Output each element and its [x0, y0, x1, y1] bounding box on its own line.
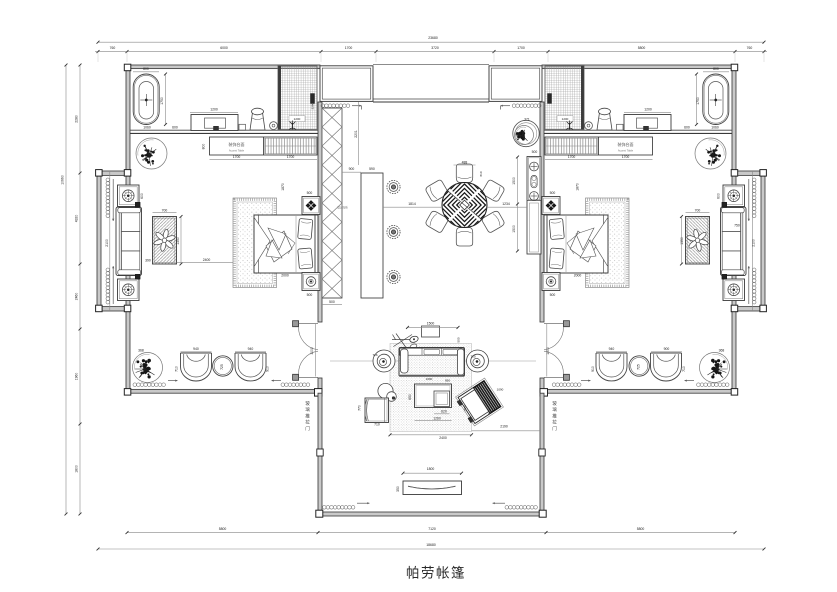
svg-text:2280: 2280: [74, 115, 78, 123]
svg-text:23680: 23680: [428, 36, 438, 40]
svg-text:800: 800: [713, 67, 719, 71]
svg-text:1350: 1350: [176, 237, 180, 245]
svg-text:700: 700: [695, 208, 701, 212]
svg-text:拉: 拉: [305, 419, 310, 426]
svg-text:6000: 6000: [220, 46, 228, 50]
svg-text:371: 371: [524, 117, 530, 121]
svg-text:璃: 璃: [552, 406, 557, 413]
svg-text:2100: 2100: [105, 239, 109, 247]
svg-text:1750: 1750: [160, 97, 164, 105]
svg-text:1700: 1700: [517, 46, 525, 50]
svg-text:装饰台面: 装饰台面: [618, 141, 634, 147]
svg-text:1814: 1814: [408, 202, 416, 206]
svg-text:620: 620: [441, 410, 447, 414]
svg-text:推: 推: [305, 412, 310, 419]
svg-text:350: 350: [396, 486, 400, 492]
svg-text:装饰台面: 装饰台面: [229, 141, 245, 147]
svg-text:5800: 5800: [637, 527, 645, 531]
svg-text:770: 770: [357, 405, 361, 411]
svg-text:760: 760: [110, 46, 116, 50]
svg-text:1700: 1700: [233, 155, 241, 159]
svg-text:810: 810: [479, 171, 483, 176]
svg-text:700: 700: [162, 208, 168, 212]
svg-text:368: 368: [719, 349, 725, 353]
svg-text:2100: 2100: [751, 239, 755, 247]
svg-text:500: 500: [550, 293, 556, 297]
svg-text:1700: 1700: [568, 155, 576, 159]
svg-text:门: 门: [305, 425, 310, 432]
svg-text:1090: 1090: [426, 377, 433, 381]
svg-text:910: 910: [591, 366, 595, 372]
svg-text:500: 500: [532, 150, 538, 154]
svg-text:1500: 1500: [512, 177, 516, 185]
svg-text:910: 910: [265, 366, 269, 372]
svg-text:1350: 1350: [680, 237, 684, 245]
svg-text:推: 推: [552, 412, 557, 419]
svg-text:950: 950: [445, 379, 450, 383]
svg-text:500: 500: [550, 191, 556, 195]
svg-text:1500: 1500: [512, 225, 516, 233]
svg-text:5800: 5800: [638, 46, 646, 50]
svg-text:1090: 1090: [497, 388, 504, 392]
svg-text:5800: 5800: [219, 527, 227, 531]
svg-text:940: 940: [248, 347, 254, 351]
svg-text:600: 600: [717, 193, 721, 199]
svg-text:940: 940: [609, 347, 615, 351]
svg-text:1500: 1500: [427, 321, 435, 325]
svg-text:2400: 2400: [439, 436, 447, 440]
svg-text:2000: 2000: [281, 274, 289, 278]
svg-text:2460: 2460: [74, 293, 78, 301]
svg-text:璃: 璃: [305, 406, 310, 413]
svg-text:500: 500: [307, 191, 313, 195]
svg-text:710: 710: [374, 423, 380, 427]
svg-text:1800: 1800: [427, 467, 435, 471]
svg-text:710: 710: [175, 366, 179, 372]
svg-text:500: 500: [307, 293, 313, 297]
svg-text:800: 800: [202, 144, 206, 150]
svg-text:玻: 玻: [305, 400, 310, 407]
svg-text:1870: 1870: [281, 183, 285, 191]
svg-text:帕劳帐篷: 帕劳帐篷: [406, 566, 466, 581]
svg-text:820: 820: [463, 405, 467, 410]
svg-text:拉: 拉: [552, 419, 557, 426]
svg-text:玻璃隔断: 玻璃隔断: [337, 206, 348, 210]
svg-text:1260: 1260: [433, 416, 441, 420]
svg-text:3720: 3720: [431, 46, 439, 50]
svg-text:1200: 1200: [562, 117, 569, 121]
svg-text:800: 800: [143, 67, 149, 71]
svg-text:2190: 2190: [500, 425, 508, 429]
svg-text:1700: 1700: [345, 46, 353, 50]
svg-text:Accent Table: Accent Table: [618, 148, 634, 152]
svg-text:725: 725: [220, 364, 224, 370]
svg-text:1800: 1800: [74, 465, 78, 473]
svg-text:1000: 1000: [310, 347, 314, 355]
svg-text:500: 500: [457, 337, 461, 342]
svg-text:930: 930: [487, 409, 491, 414]
svg-text:368: 368: [138, 349, 144, 353]
svg-text:750: 750: [470, 355, 475, 359]
svg-text:488: 488: [462, 160, 468, 164]
svg-text:1200: 1200: [210, 108, 218, 112]
svg-text:1060: 1060: [143, 125, 151, 129]
svg-text:4320: 4320: [74, 215, 78, 223]
svg-text:Accent Table: Accent Table: [229, 148, 245, 152]
svg-text:1870: 1870: [576, 183, 580, 191]
svg-text:2000: 2000: [574, 274, 582, 278]
svg-text:600: 600: [140, 193, 144, 199]
svg-text:18680: 18680: [426, 543, 436, 547]
svg-text:760: 760: [747, 46, 753, 50]
svg-text:玻: 玻: [552, 400, 557, 407]
svg-text:650: 650: [408, 394, 412, 400]
svg-text:2201: 2201: [354, 130, 358, 138]
svg-text:750: 750: [734, 224, 740, 228]
svg-text:390: 390: [145, 258, 151, 262]
svg-text:1700: 1700: [622, 155, 630, 159]
svg-text:900: 900: [349, 167, 355, 171]
svg-text:590: 590: [369, 167, 375, 171]
svg-text:2400: 2400: [203, 258, 211, 262]
svg-text:725: 725: [636, 364, 640, 370]
svg-text:1960: 1960: [74, 373, 78, 381]
svg-text:10660: 10660: [60, 175, 64, 185]
svg-text:900: 900: [664, 347, 670, 351]
svg-text:710: 710: [682, 366, 686, 372]
svg-text:600: 600: [172, 126, 178, 130]
svg-text:1060: 1060: [711, 125, 719, 129]
svg-text:1234: 1234: [502, 202, 510, 206]
svg-text:门: 门: [552, 425, 557, 432]
svg-text:1200: 1200: [644, 108, 652, 112]
svg-text:1000: 1000: [546, 347, 550, 355]
svg-text:2280: 2280: [310, 102, 314, 109]
svg-text:940: 940: [193, 347, 199, 351]
svg-text:1750: 1750: [696, 97, 700, 105]
svg-text:1200: 1200: [294, 117, 301, 121]
svg-text:600: 600: [684, 126, 690, 130]
svg-text:7120: 7120: [428, 527, 436, 531]
svg-text:500: 500: [329, 300, 335, 304]
svg-text:1700: 1700: [287, 155, 295, 159]
svg-text:716: 716: [372, 353, 377, 357]
